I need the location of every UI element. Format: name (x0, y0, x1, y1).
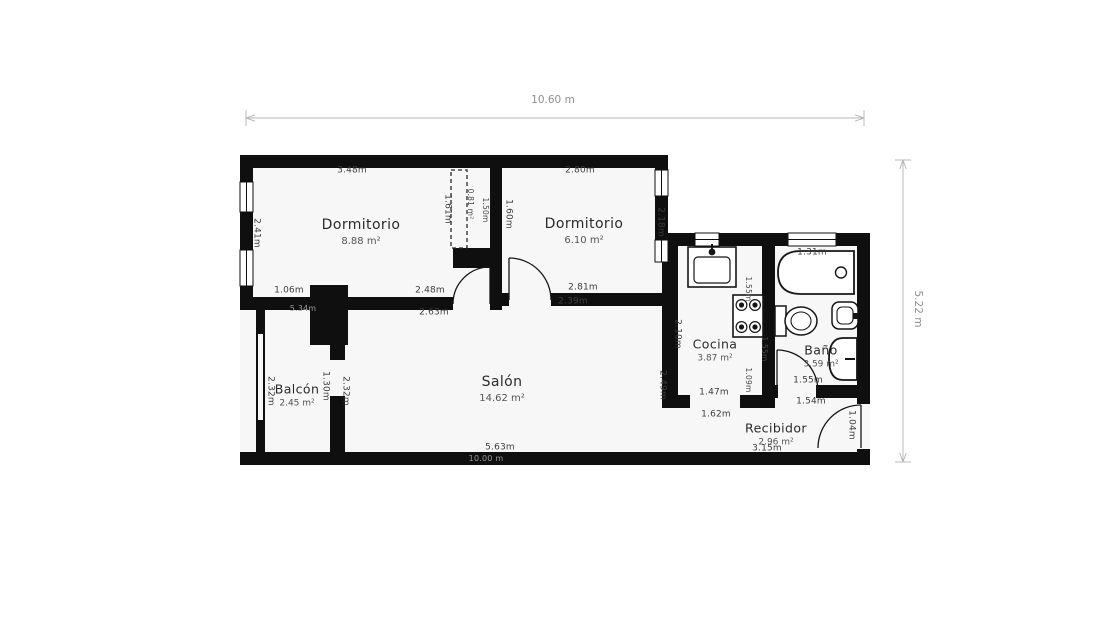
width-dimension-line (246, 110, 864, 126)
window-bedroom1-upper (240, 182, 253, 212)
balcony-railing (258, 334, 263, 420)
measure-salon-left: 2.32m (341, 376, 350, 406)
measure-cocina-counter: 1.55m (744, 276, 752, 301)
window-bedroom1-lower (240, 250, 253, 286)
measure-salon-bottom: 5.63m (485, 444, 515, 453)
measure-cocina-bottom: 1.47m (699, 389, 729, 398)
room-area: 3.59 m² (803, 360, 838, 370)
measure-armario-left: 1.61m (443, 194, 452, 224)
measure-salon-right-upper: 2.10m (673, 319, 682, 349)
measure-cocina-bottom-outer: 1.62m (701, 411, 731, 420)
measure-bano-bottom: 1.55m (793, 377, 823, 386)
measure-salon-hidden-bottom: 10.00 m (469, 455, 504, 463)
room-name: Dormitorio (545, 216, 624, 232)
room-name: Cocina (693, 337, 738, 352)
measure-balcon-left: 2.32m (266, 376, 275, 406)
measure-recibidor-top: 1.54m (796, 398, 826, 407)
measure-dorm1-bottom-left: 1.06m (274, 287, 304, 296)
measure-cocina-right-wall: 1.55m (760, 336, 768, 361)
window-kitchen (695, 233, 719, 246)
room-label-dormitorio-2: Dormitorio 6.10 m² (545, 216, 624, 246)
measure-entrance-door: 1.04m (847, 410, 856, 440)
room-area: 6.10 m² (545, 235, 624, 246)
window-bedroom2-lower (655, 240, 668, 262)
measure-dorm1-bottom-outer: 2.63m (419, 309, 449, 318)
window-bedroom2-upper (655, 170, 668, 196)
measure-salon-right-lower: 2.49m (658, 370, 667, 400)
washbasin-icon (832, 302, 858, 329)
measure-dorm1-left: 2.41m (252, 218, 261, 248)
measure-cocina-right-lower: 1.09m (744, 367, 752, 392)
room-area: 8.88 m² (322, 236, 401, 247)
measure-dorm1-bottom-right: 2.48m (415, 287, 445, 296)
measure-dorm2-right: 2.18m (656, 207, 665, 237)
room-area: 3.87 m² (693, 354, 738, 364)
room-name: Baño (803, 343, 838, 358)
overall-height-label: 5.22 m (912, 291, 924, 328)
room-label-bano: Baño 3.59 m² (803, 343, 838, 370)
room-label-dormitorio-1: Dormitorio 8.88 m² (322, 217, 401, 247)
room-name: Balcón (275, 382, 320, 397)
room-label-salon: Salón 14.62 m² (479, 374, 525, 404)
window-bathroom (788, 233, 836, 246)
measure-bano-window: 1.31m (797, 249, 827, 258)
height-dimension-line (895, 160, 911, 462)
entrance-opening (857, 404, 870, 449)
room-area: 2.45 m² (275, 399, 320, 409)
measure-armario-width: 1.50m (481, 197, 489, 222)
measure-recibidor-bottom: 3.15m (752, 445, 782, 454)
measure-dorm2-bottom-outer: 2.39m (558, 298, 588, 307)
measure-armario-area: 0.81 m² (466, 189, 474, 220)
floor-plan-canvas: 10.60 m 5.22 m Dormitorio 8.88 m² Dormit… (0, 0, 1110, 626)
measure-dorm2-left: 1.60m (504, 199, 513, 229)
room-name: Salón (479, 374, 525, 390)
measure-balcon-door: 1.30m (321, 371, 330, 401)
measure-salon-hidden-top: 5.34m (290, 305, 317, 313)
kitchen-sink-icon (688, 244, 736, 287)
room-name: Dormitorio (322, 217, 401, 233)
measure-dorm2-bottom: 2.81m (568, 284, 598, 293)
toilet-icon (775, 306, 817, 336)
room-name: Recibidor (745, 421, 807, 436)
measure-dorm2-top: 2.80m (565, 167, 595, 176)
room-label-balcon: Balcón 2.45 m² (275, 382, 320, 409)
measure-dorm1-top: 3.48m (337, 167, 367, 176)
overall-width-label: 10.60 m (531, 94, 575, 106)
room-area: 14.62 m² (479, 393, 525, 404)
room-label-cocina: Cocina 3.87 m² (693, 337, 738, 364)
